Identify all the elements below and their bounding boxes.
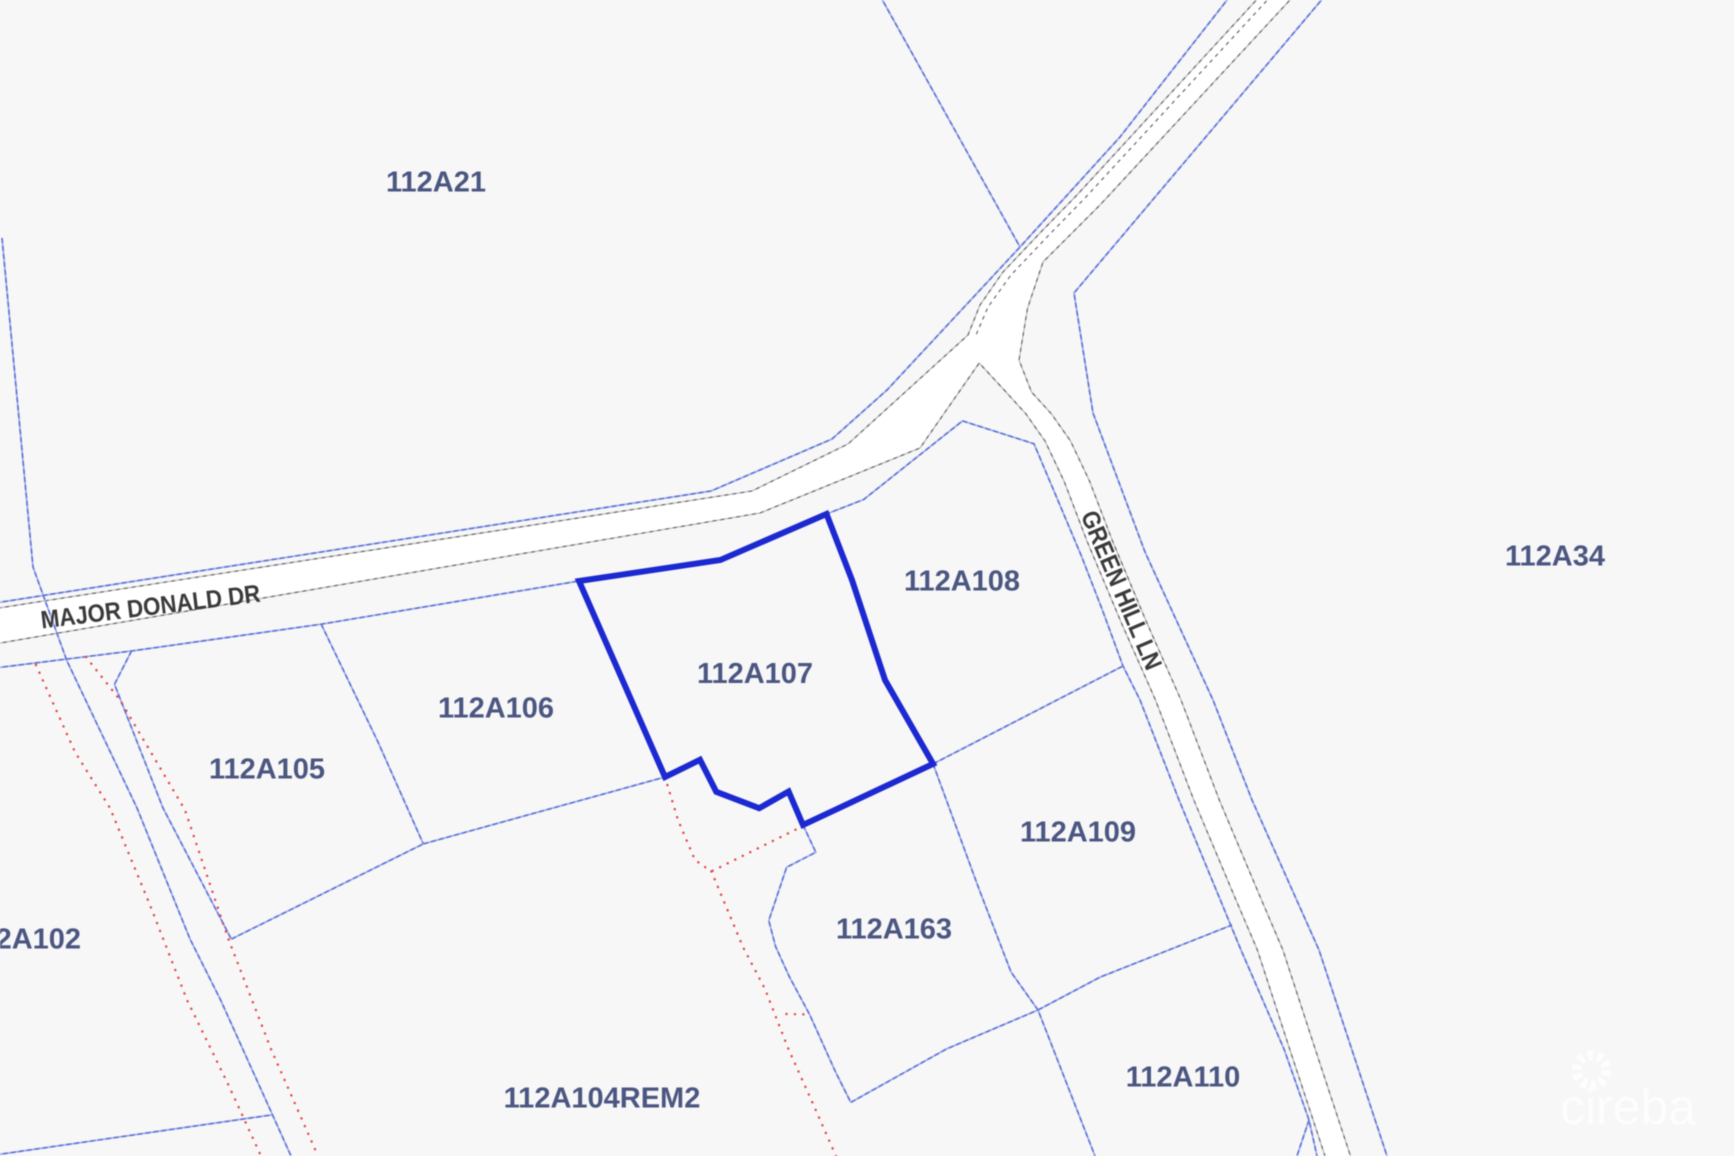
svg-text:112A106: 112A106	[438, 693, 554, 725]
svg-text:112A109: 112A109	[1020, 817, 1136, 849]
svg-text:112A105: 112A105	[209, 754, 325, 786]
svg-text:cireba: cireba	[1560, 1079, 1696, 1135]
svg-text:112A34: 112A34	[1505, 541, 1605, 573]
svg-text:112A107: 112A107	[697, 658, 813, 690]
svg-text:112A102: 112A102	[0, 924, 81, 956]
svg-text:112A21: 112A21	[386, 167, 486, 199]
svg-text:112A163: 112A163	[836, 914, 952, 946]
svg-text:112A104REM2: 112A104REM2	[504, 1083, 701, 1115]
svg-text:112A108: 112A108	[904, 566, 1020, 598]
svg-text:112A110: 112A110	[1126, 1062, 1241, 1094]
